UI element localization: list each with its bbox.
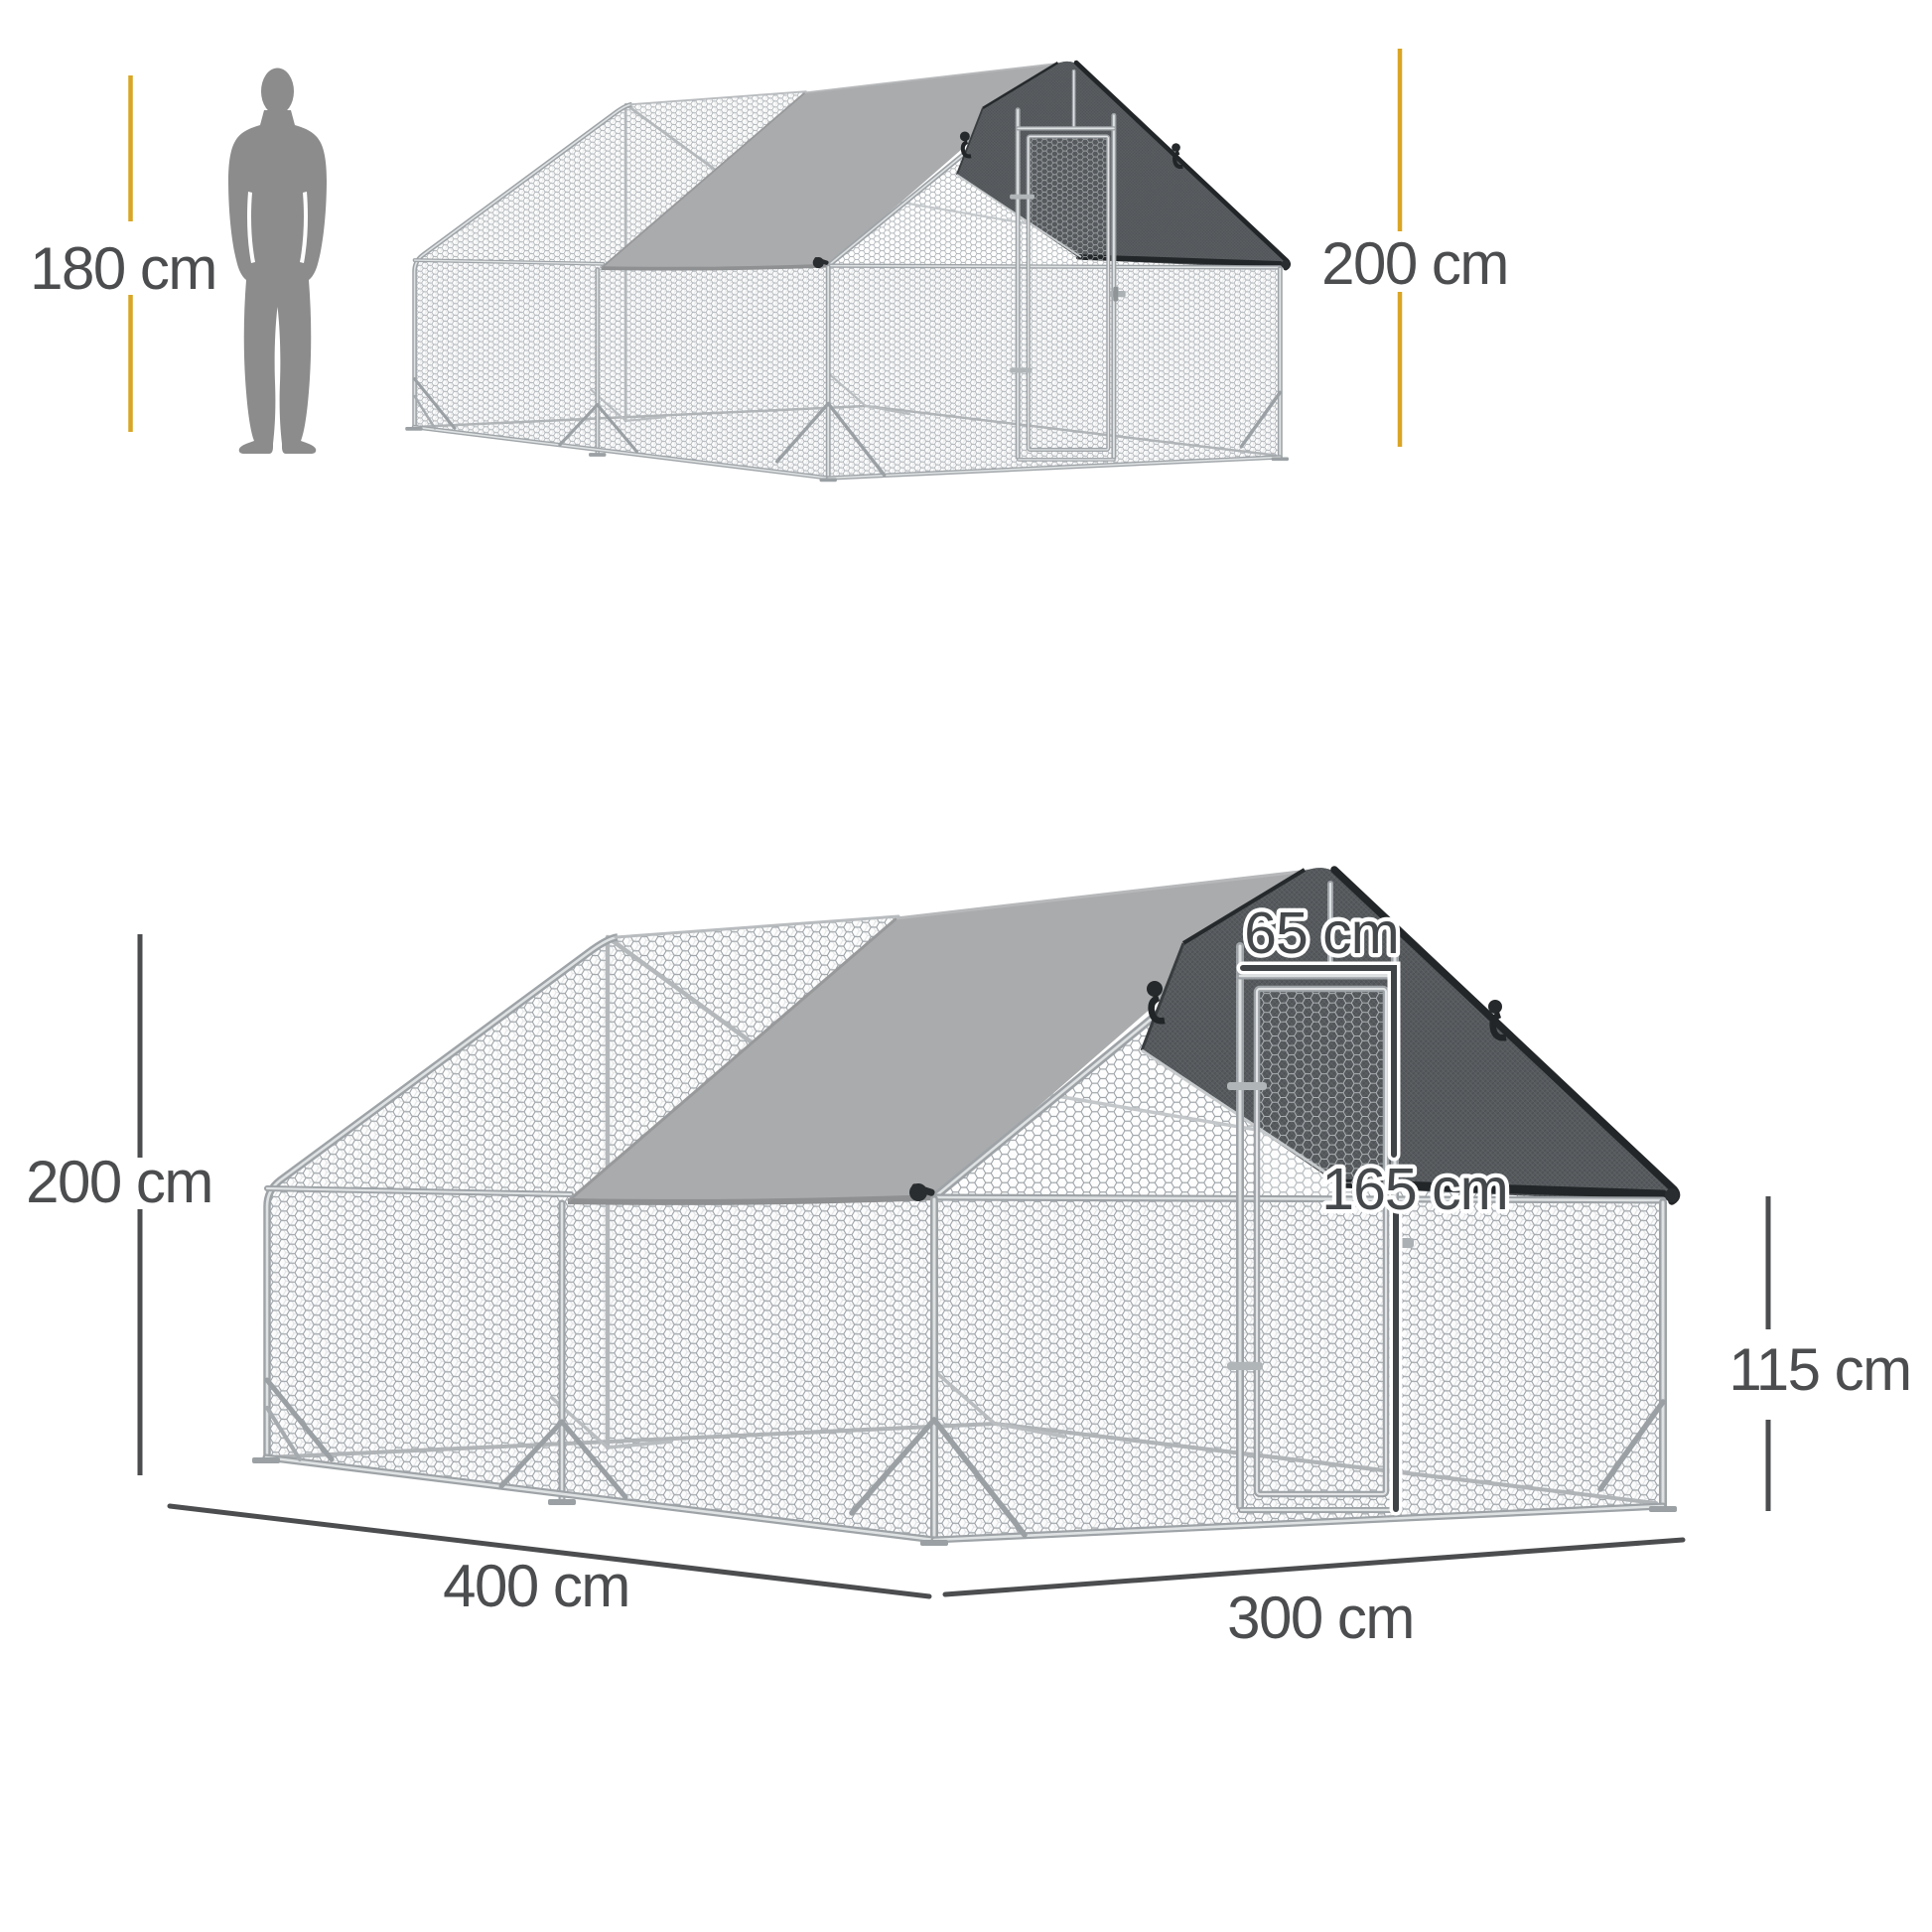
svg-text:300 cm: 300 cm bbox=[1227, 1585, 1414, 1651]
svg-text:200 cm: 200 cm bbox=[1321, 230, 1508, 297]
svg-text:115 cm: 115 cm bbox=[1728, 1336, 1910, 1403]
svg-text:400 cm: 400 cm bbox=[443, 1553, 629, 1619]
svg-text:65 cm: 65 cm bbox=[1244, 900, 1399, 966]
svg-text:165 cm: 165 cm bbox=[1321, 1157, 1507, 1222]
svg-text:200 cm: 200 cm bbox=[26, 1149, 212, 1215]
svg-text:180 cm: 180 cm bbox=[30, 235, 216, 302]
